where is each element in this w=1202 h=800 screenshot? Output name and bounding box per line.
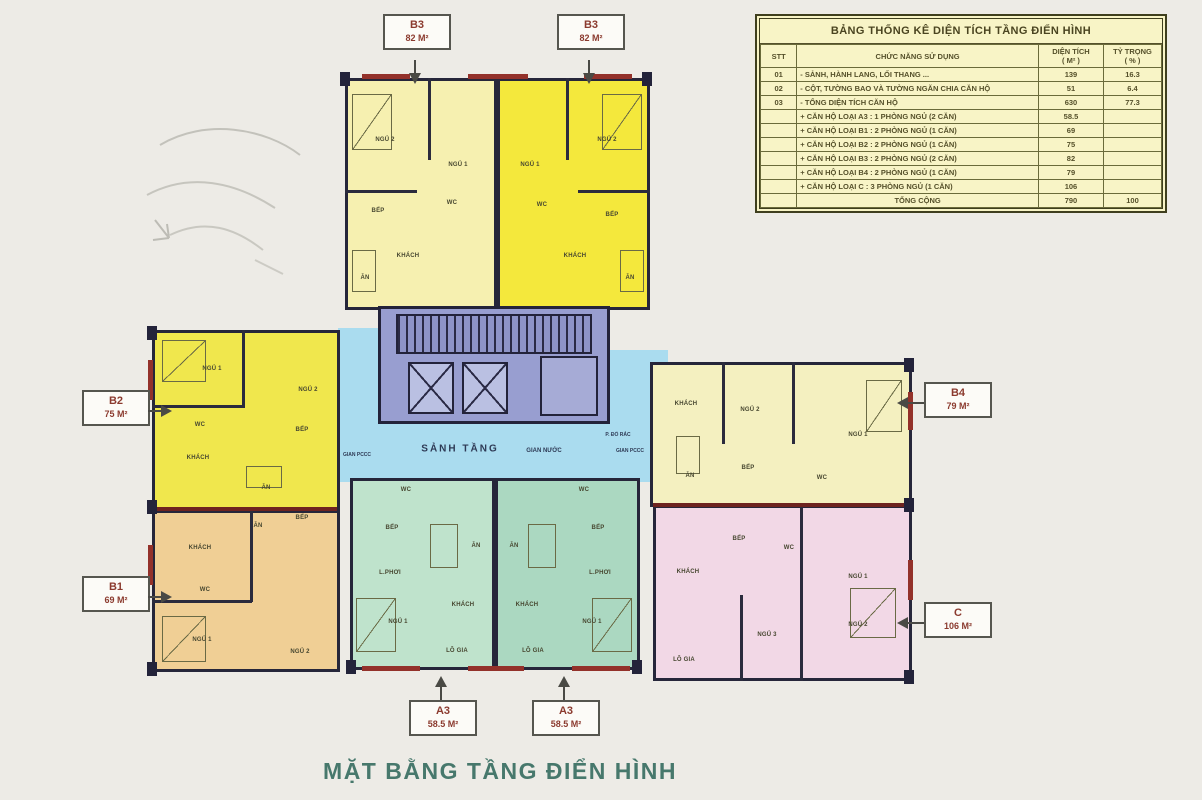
unit-area: 58.5 M² xyxy=(411,718,475,730)
room-label: BẾP xyxy=(386,525,399,531)
table-row: + CĂN HỘ LOẠI B3 : 2 PHÒNG NGỦ (2 CĂN)82 xyxy=(761,152,1162,166)
room-label: L.PHƠI xyxy=(379,570,401,576)
unit-area: 106 M² xyxy=(926,620,990,632)
dining-table-icon xyxy=(676,436,700,474)
area-statistics-table: BẢNG THỐNG KÊ DIỆN TÍCH TẦNG ĐIỂN HÌNH S… xyxy=(755,14,1167,213)
unit-area: 79 M² xyxy=(926,400,990,412)
unit-code: A3 xyxy=(534,705,598,718)
room-label: NGỦ 1 xyxy=(848,432,867,438)
table-row: 01- SẢNH, HÀNH LANG, LỐI THANG ...13916.… xyxy=(761,68,1162,82)
dining-table-icon xyxy=(528,524,556,568)
col-pct: TỶ TRỌNG ( % ) xyxy=(1104,45,1162,68)
col-stt: STT xyxy=(761,45,797,68)
room-label: WC xyxy=(401,487,411,493)
room-label: ĂN xyxy=(685,473,694,479)
unit-code: C xyxy=(926,607,990,620)
lobby-strip-left xyxy=(338,328,378,482)
room-label: L.PHƠI xyxy=(589,570,611,576)
room-label: NGỦ 1 xyxy=(582,619,601,625)
room-label: WC xyxy=(195,422,205,428)
room-label: WC xyxy=(817,475,827,481)
room-label: KHÁCH xyxy=(187,455,210,461)
room-label: LÔ GIA xyxy=(522,648,544,654)
room-label: KHÁCH xyxy=(677,569,700,575)
room-label: BẾP xyxy=(592,525,605,531)
room-label: KHÁCH xyxy=(675,401,698,407)
unit-code: B2 xyxy=(84,395,148,408)
room-label: BẾP xyxy=(372,208,385,214)
room-label: KHÁCH xyxy=(397,253,420,259)
room-label: NGỦ 1 xyxy=(192,637,211,643)
room-label: LÔ GIA xyxy=(446,648,468,654)
table-total-row: TỔNG CỘNG790100 xyxy=(761,194,1162,208)
table-row: + CĂN HỘ LOẠI C : 3 PHÒNG NGỦ (1 CĂN)106 xyxy=(761,180,1162,194)
room-label: ĂN xyxy=(253,523,262,529)
bed-icon xyxy=(356,598,396,652)
room-label: WC xyxy=(579,487,589,493)
floor-plan-sheet: NGỦ 2 NGỦ 1 BẾP WC KHÁCH ĂN NGỦ 1 NGỦ 2 … xyxy=(0,0,1202,800)
table-row: + CĂN HỘ LOẠI B4 : 2 PHÒNG NGỦ (1 CĂN)79 xyxy=(761,166,1162,180)
lobby-label: SẢNH TẦNG xyxy=(421,444,498,455)
room-label: NGỦ 2 xyxy=(848,622,867,628)
pencil-sketch xyxy=(135,110,325,290)
dining-table-icon xyxy=(620,250,644,292)
callout-b3-left: B3 82 M² xyxy=(383,14,451,50)
col-pct-line1: TỶ TRỌNG xyxy=(1113,47,1152,56)
callout-b3-right: B3 82 M² xyxy=(557,14,625,50)
room-label: KHÁCH xyxy=(452,602,475,608)
room-label: NGỦ 2 xyxy=(375,137,394,143)
callout-a3-right: A3 58.5 M² xyxy=(532,700,600,736)
room-label: NGỦ 1 xyxy=(848,574,867,580)
room-label: BẾP xyxy=(606,212,619,218)
room-label: BẾP xyxy=(733,536,746,542)
unit-code: B3 xyxy=(385,19,449,32)
room-label: NGỦ 3 xyxy=(757,632,776,638)
table-header-row: STT CHỨC NĂNG SỬ DỤNG DIỆN TÍCH ( M² ) T… xyxy=(761,45,1162,68)
col-area-line2: ( M² ) xyxy=(1062,56,1080,65)
unit-area: 58.5 M² xyxy=(534,718,598,730)
room-label: NGỦ 2 xyxy=(290,649,309,655)
callout-b1: B1 69 M² xyxy=(82,576,150,612)
room-label: ĂN xyxy=(360,275,369,281)
unit-code: A3 xyxy=(411,705,475,718)
room-label: ĂN xyxy=(509,543,518,549)
elevator-shaft-1 xyxy=(408,362,454,414)
room-label: NGỦ 1 xyxy=(202,366,221,372)
callout-b4: B4 79 M² xyxy=(924,382,992,418)
bed-icon xyxy=(162,340,206,382)
room-label: BẾP xyxy=(296,515,309,521)
callout-b2: B2 75 M² xyxy=(82,390,150,426)
unit-area: 82 M² xyxy=(385,32,449,44)
dining-table-icon xyxy=(430,524,458,568)
elevator-shaft-2 xyxy=(462,362,508,414)
trash-room-label: P. ĐỔ RÁC xyxy=(605,432,630,438)
room-label: NGỦ 2 xyxy=(597,137,616,143)
table-row: 03- TỔNG DIỆN TÍCH CĂN HỘ63077.3 xyxy=(761,96,1162,110)
callout-a3-left: A3 58.5 M² xyxy=(409,700,477,736)
room-label: KHÁCH xyxy=(189,545,212,551)
room-label: KHÁCH xyxy=(564,253,587,259)
room-label: ĂN xyxy=(625,275,634,281)
room-label: ĂN xyxy=(261,485,270,491)
room-label: WC xyxy=(447,200,457,206)
callout-c: C 106 M² xyxy=(924,602,992,638)
unit-area: 75 M² xyxy=(84,408,148,420)
technical-room xyxy=(540,356,598,416)
dining-table-icon xyxy=(352,250,376,292)
unit-code: B1 xyxy=(84,581,148,594)
room-label: NGỦ 1 xyxy=(520,162,539,168)
unit-code: B3 xyxy=(559,19,623,32)
room-label: ĂN xyxy=(471,543,480,549)
col-pct-line2: ( % ) xyxy=(1125,56,1141,65)
table-row: 02- CỘT, TƯỜNG BAO VÀ TƯỜNG NGĂN CHIA CĂ… xyxy=(761,82,1162,96)
col-area-line1: DIỆN TÍCH xyxy=(1052,47,1090,56)
room-label: BẾP xyxy=(742,465,755,471)
fire-room-label: GIAN PCCC xyxy=(616,448,644,454)
col-function: CHỨC NĂNG SỬ DỤNG xyxy=(797,45,1039,68)
room-label: LÔ GIA xyxy=(673,657,695,663)
staircase xyxy=(396,314,592,354)
unit-code: B4 xyxy=(926,387,990,400)
water-room-label: GIAN NƯỚC xyxy=(526,448,561,454)
room-label: NGỦ 2 xyxy=(740,407,759,413)
unit-area: 69 M² xyxy=(84,594,148,606)
table-row: + CĂN HỘ LOẠI A3 : 1 PHÒNG NGỦ (2 CĂN)58… xyxy=(761,110,1162,124)
room-label: WC xyxy=(784,545,794,551)
room-label: BẾP xyxy=(296,427,309,433)
plan-title: MẶT BẰNG TẦNG ĐIỂN HÌNH xyxy=(290,758,710,785)
bed-icon xyxy=(592,598,632,652)
room-label: NGỦ 2 xyxy=(298,387,317,393)
fire-room-label: GIAN PCCC xyxy=(343,452,371,458)
room-label: NGỦ 1 xyxy=(448,162,467,168)
room-label: KHÁCH xyxy=(516,602,539,608)
room-label: WC xyxy=(200,587,210,593)
table-title: BẢNG THỐNG KÊ DIỆN TÍCH TẦNG ĐIỂN HÌNH xyxy=(760,19,1162,44)
col-area: DIỆN TÍCH ( M² ) xyxy=(1038,45,1103,68)
unit-area: 82 M² xyxy=(559,32,623,44)
room-label: WC xyxy=(537,202,547,208)
room-label: NGỦ 1 xyxy=(388,619,407,625)
bed-icon xyxy=(850,588,896,638)
table-row: + CĂN HỘ LOẠI B2 : 2 PHÒNG NGỦ (1 CĂN)75 xyxy=(761,138,1162,152)
table-row: + CĂN HỘ LOẠI B1 : 2 PHÒNG NGỦ (1 CĂN)69 xyxy=(761,124,1162,138)
